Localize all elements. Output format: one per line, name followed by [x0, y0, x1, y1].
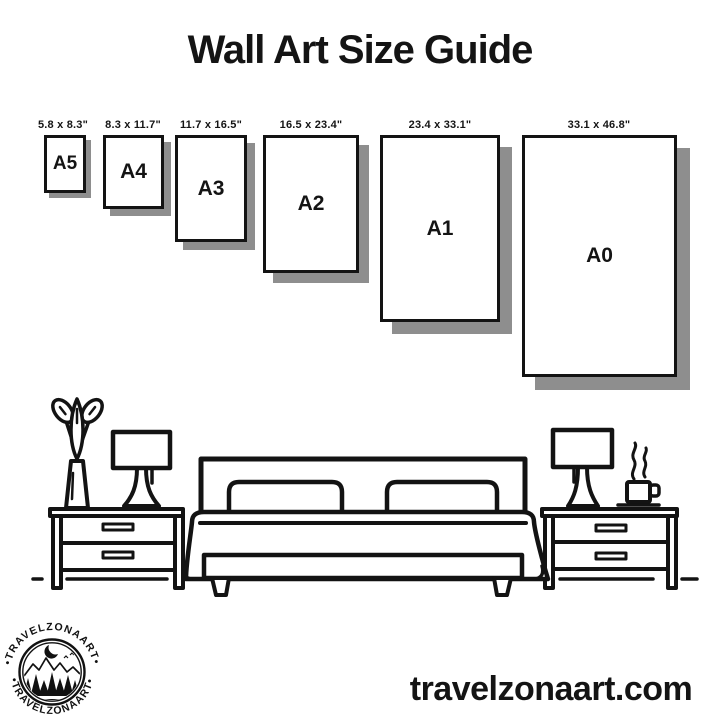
- bed-icon: [184, 459, 548, 595]
- wall-art-size-guide-infographic: Wall Art Size Guide 5.8 x 8.3" A5 8.3 x …: [0, 0, 720, 720]
- nightstand-left-icon: [50, 509, 183, 588]
- bed-leg-left: [212, 578, 229, 595]
- dimension-label-a2: 16.5 x 23.4": [280, 119, 343, 131]
- nightstand-right-icon: [542, 509, 677, 588]
- paper-a4-label: A4: [120, 160, 147, 184]
- moon-icon: [44, 645, 58, 659]
- dimension-label-a0: 33.1 x 46.8": [568, 119, 631, 131]
- paper-a5-label: A5: [53, 153, 77, 175]
- page-title: Wall Art Size Guide: [0, 28, 720, 73]
- paper-a3-label: A3: [198, 177, 225, 201]
- table-lamp-right-icon: [553, 430, 612, 506]
- dimension-label-a1: 23.4 x 33.1": [409, 119, 472, 131]
- bedroom-illustration: [0, 375, 720, 605]
- paper-a2-label: A2: [298, 192, 325, 216]
- dimension-label-a4: 8.3 x 11.7": [105, 119, 161, 131]
- website-url: travelzonaart.com: [410, 670, 693, 709]
- dimension-label-a5: 5.8 x 8.3": [38, 119, 88, 131]
- paper-a0-label: A0: [586, 244, 613, 268]
- potted-plant-icon: [49, 396, 107, 508]
- coffee-cup-icon: [618, 443, 659, 505]
- brand-logo: •TRAVELZONAART• •TRAVELZONAART•: [4, 612, 100, 720]
- table-lamp-left-icon: [113, 432, 170, 506]
- paper-a2: A2: [263, 135, 359, 273]
- birds-icon: [64, 653, 74, 658]
- paper-a4: A4: [103, 135, 164, 209]
- bed-leg-right: [494, 578, 511, 595]
- paper-a3: A3: [175, 135, 247, 242]
- paper-a1-label: A1: [427, 217, 454, 241]
- paper-a0: A0: [522, 135, 677, 377]
- dimension-label-a3: 11.7 x 16.5": [180, 119, 242, 131]
- paper-a1: A1: [380, 135, 500, 322]
- paper-a5: A5: [44, 135, 86, 193]
